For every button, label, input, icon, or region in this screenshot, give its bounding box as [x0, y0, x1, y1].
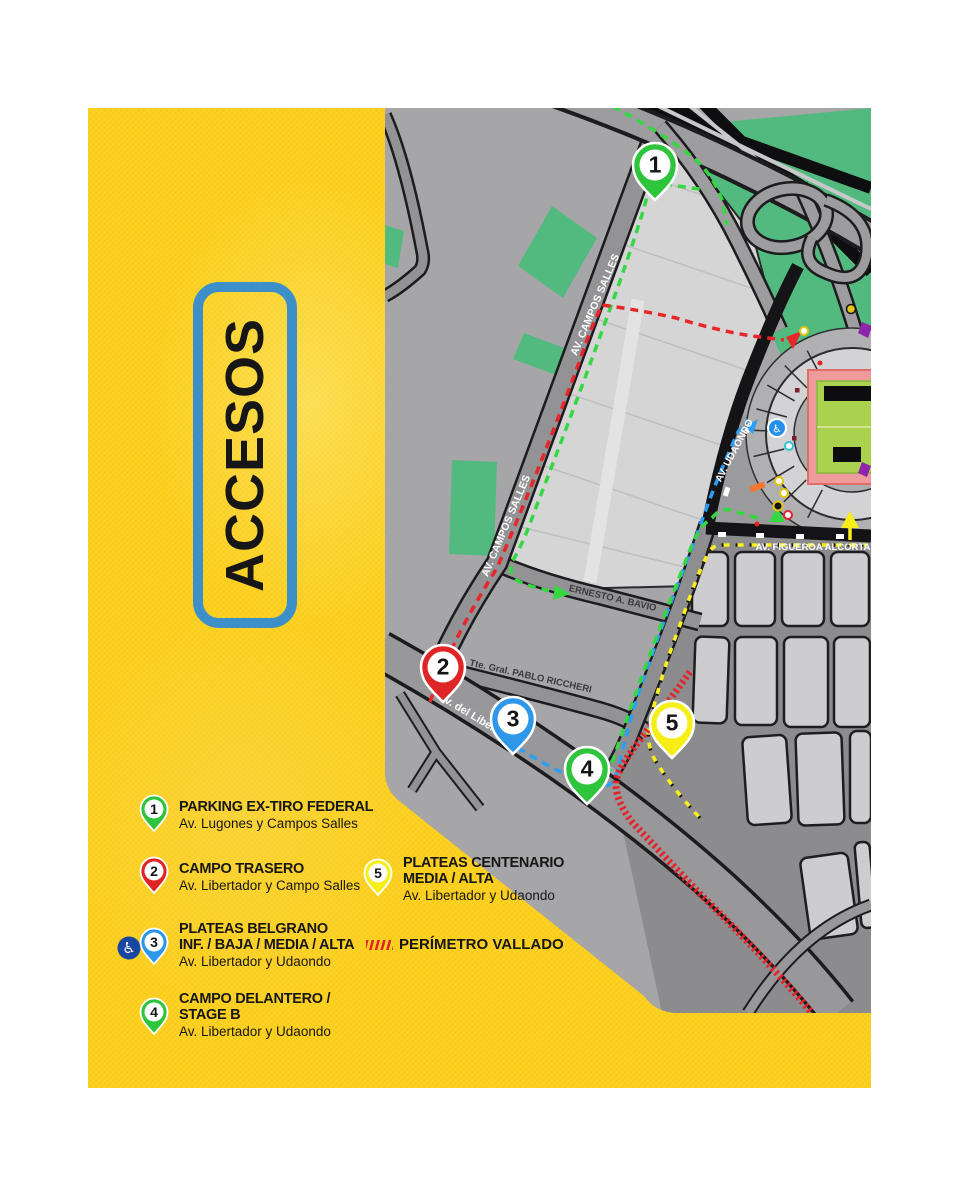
svg-text:5: 5 — [374, 865, 382, 881]
perimeter-label: PERÍMETRO VALLADO — [399, 936, 564, 953]
svg-text:3: 3 — [507, 706, 520, 732]
legend-pin-3: 3 — [137, 927, 171, 971]
legend-pin-1: 1 — [137, 794, 171, 838]
stage-b — [833, 447, 861, 462]
svg-text:3: 3 — [150, 934, 158, 950]
legend-item-parking: PARKING EX-TIRO FEDERAL Av. Lugones y Ca… — [179, 799, 373, 832]
title-box: ACCESOS — [193, 282, 297, 628]
svg-text:1: 1 — [649, 152, 662, 178]
svg-text:2: 2 — [437, 654, 450, 680]
perimeter-hatch-icon — [366, 940, 393, 950]
stage-a — [824, 386, 871, 401]
street-label-figueroa: AV. FIGUEROA ALCORTA — [756, 542, 871, 553]
svg-text:2: 2 — [150, 863, 158, 879]
svg-text:4: 4 — [150, 1004, 158, 1020]
legend-item-plateas-belgrano: PLATEAS BELGRANO INF. / BAJA / MEDIA / A… — [179, 921, 354, 970]
legend-item-campo-trasero: CAMPO TRASERO Av. Libertador y Campo Sal… — [179, 861, 360, 894]
wheelchair-icon: ♿ — [768, 419, 786, 437]
poster: AV. CAMPOS SALLES AV. CAMPOS SALLES ERNE… — [0, 0, 960, 1200]
svg-text:1: 1 — [150, 801, 158, 817]
legend-item-plateas-centenario: PLATEAS CENTENARIO MEDIA / ALTA Av. Libe… — [403, 855, 564, 904]
legend-pin-5: 5 — [361, 858, 395, 902]
svg-text:♿: ♿ — [122, 939, 135, 957]
page-title: ACCESOS — [214, 318, 276, 592]
legend-pin-4: 4 — [137, 997, 171, 1041]
legend-pin-2: 2 — [137, 856, 171, 900]
svg-text:4: 4 — [581, 756, 594, 782]
svg-text:5: 5 — [666, 710, 679, 736]
legend-item-campo-delantero: CAMPO DELANTERO / STAGE B Av. Libertador… — [179, 991, 331, 1040]
svg-text:♿: ♿ — [772, 423, 782, 436]
